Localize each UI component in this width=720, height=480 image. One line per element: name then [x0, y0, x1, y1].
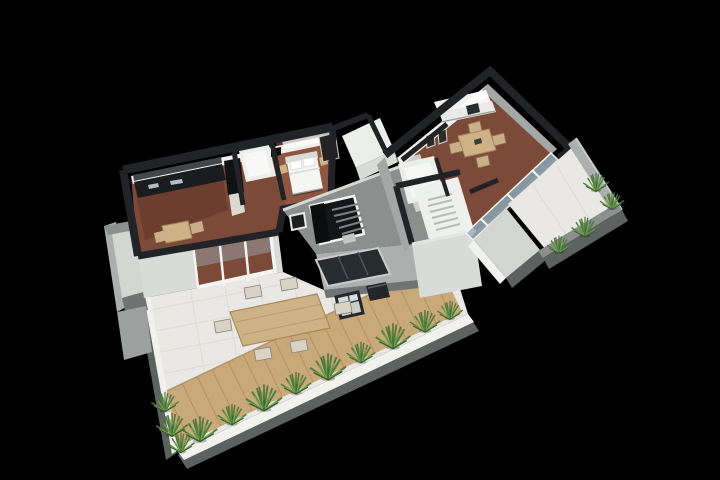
- floorplan-render: [0, 0, 720, 480]
- wall-panel-frame: [290, 213, 306, 230]
- floorplan-render-stage: [0, 0, 720, 480]
